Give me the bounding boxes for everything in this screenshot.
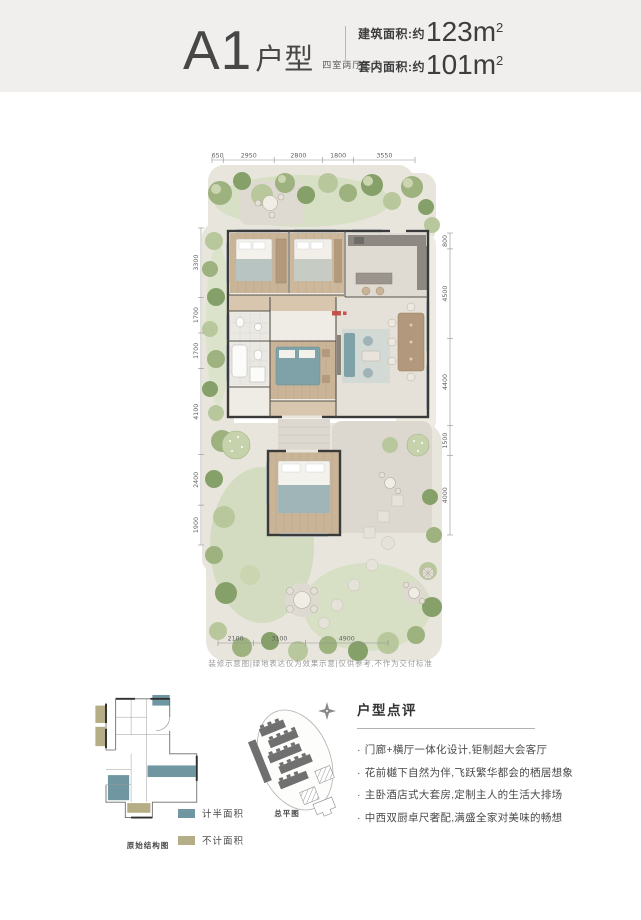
inner-area-label: 套内面积:约 (358, 58, 425, 75)
review-bullet: ·门廊+横厅一体化设计,钜制超大会客厅 (357, 739, 602, 762)
legend-swatch (178, 809, 195, 818)
parasol (422, 567, 434, 579)
header-divider (345, 26, 346, 68)
svg-text:1800: 1800 (330, 153, 346, 160)
svg-text:2400: 2400 (193, 472, 200, 488)
floor-plan: 6502950280018003550 33001700170041002400… (182, 145, 462, 665)
svg-text:1900: 1900 (193, 517, 200, 533)
review-bullets: ·门廊+横厅一体化设计,钜制超大会客厅·花前樾下自然为伴,飞跃繁华都会的栖居想象… (357, 739, 602, 829)
svg-text:4100: 4100 (193, 404, 200, 420)
svg-text:4400: 4400 (442, 374, 449, 390)
plan-code: A1 (183, 28, 252, 73)
gross-area-row: 建筑面积:约 123 m 2 (358, 13, 503, 46)
svg-text:1700: 1700 (193, 307, 200, 323)
review-section: 户型点评 ·门廊+横厅一体化设计,钜制超大会客厅·花前樾下自然为伴,飞跃繁华都会… (357, 699, 602, 829)
site-plan-caption: 总平图 (243, 808, 331, 819)
svg-text:3550: 3550 (376, 153, 392, 160)
site-plan-svg (243, 698, 353, 820)
review-divider (357, 728, 535, 729)
floor-plan-svg: 6502950280018003550 33001700170041002400… (182, 145, 462, 665)
area-block: 建筑面积:约 123 m 2 套内面积:约 101 m 2 (358, 13, 503, 79)
svg-text:650: 650 (212, 153, 224, 160)
svg-text:1700: 1700 (193, 343, 200, 359)
inner-area-unit: m (473, 52, 496, 79)
svg-text:4500: 4500 (442, 286, 449, 302)
inner-area-value: 101 (426, 52, 473, 79)
review-bullet: ·主卧酒店式大套房,定制主人的生活大排场 (357, 784, 602, 807)
dimension-chain-right: 8004500440015004000 (442, 233, 453, 535)
half-area-zones (108, 695, 196, 800)
legend-swatch (178, 836, 195, 845)
site-plan: 总平图 (243, 698, 353, 825)
svg-text:3100: 3100 (271, 636, 287, 643)
legend-item: 计半面积 (178, 806, 244, 820)
inner-area-sup: 2 (496, 54, 503, 67)
plan-suffix: 户型 (255, 47, 313, 73)
gross-area-sup: 2 (496, 21, 503, 34)
review-bullet: ·花前樾下自然为伴,飞跃繁华都会的栖居想象 (357, 762, 602, 785)
legend: 计半面积不计面积 (178, 806, 244, 860)
svg-text:2100: 2100 (228, 636, 244, 643)
svg-text:1500: 1500 (442, 433, 449, 449)
disclaimer-text: 装修示意图|绿地表达仅为效果示意|仅供参考,不作为交付标准 (0, 658, 641, 669)
svg-text:800: 800 (442, 235, 449, 247)
gross-area-unit: m (473, 19, 496, 46)
gross-area-value: 123 (426, 19, 473, 46)
legend-item: 不计面积 (178, 833, 244, 847)
svg-text:2800: 2800 (290, 153, 306, 160)
plan-title: A1 户型 四室两厅三卫 (183, 28, 382, 73)
header: A1 户型 四室两厅三卫 建筑面积:约 123 m 2 套内面积:约 101 m… (0, 0, 641, 92)
svg-text:4000: 4000 (442, 487, 449, 503)
dimension-chain-top: 6502950280018003550 (212, 153, 415, 164)
flyer-page: A1 户型 四室两厅三卫 建筑面积:约 123 m 2 套内面积:约 101 m… (0, 0, 641, 920)
svg-text:3300: 3300 (193, 255, 200, 271)
svg-text:4900: 4900 (339, 636, 355, 643)
review-title: 户型点评 (357, 699, 602, 719)
inner-area-row: 套内面积:约 101 m 2 (358, 46, 503, 79)
north-compass-icon (318, 702, 336, 720)
svg-text:2950: 2950 (241, 153, 257, 160)
review-bullet: ·中西双厨卓尺奢配,满盛全家对美味的畅想 (357, 807, 602, 830)
gross-area-label: 建筑面积:约 (358, 25, 425, 42)
red-stamp (332, 311, 347, 316)
